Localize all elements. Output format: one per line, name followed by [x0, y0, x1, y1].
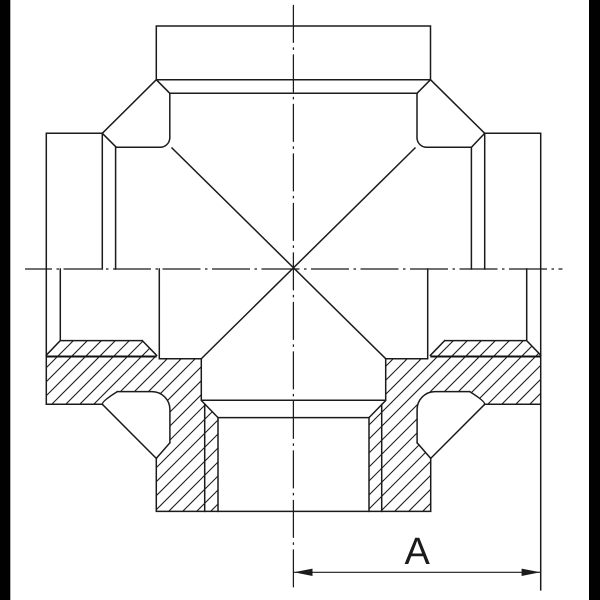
svg-text:A: A: [405, 531, 431, 573]
